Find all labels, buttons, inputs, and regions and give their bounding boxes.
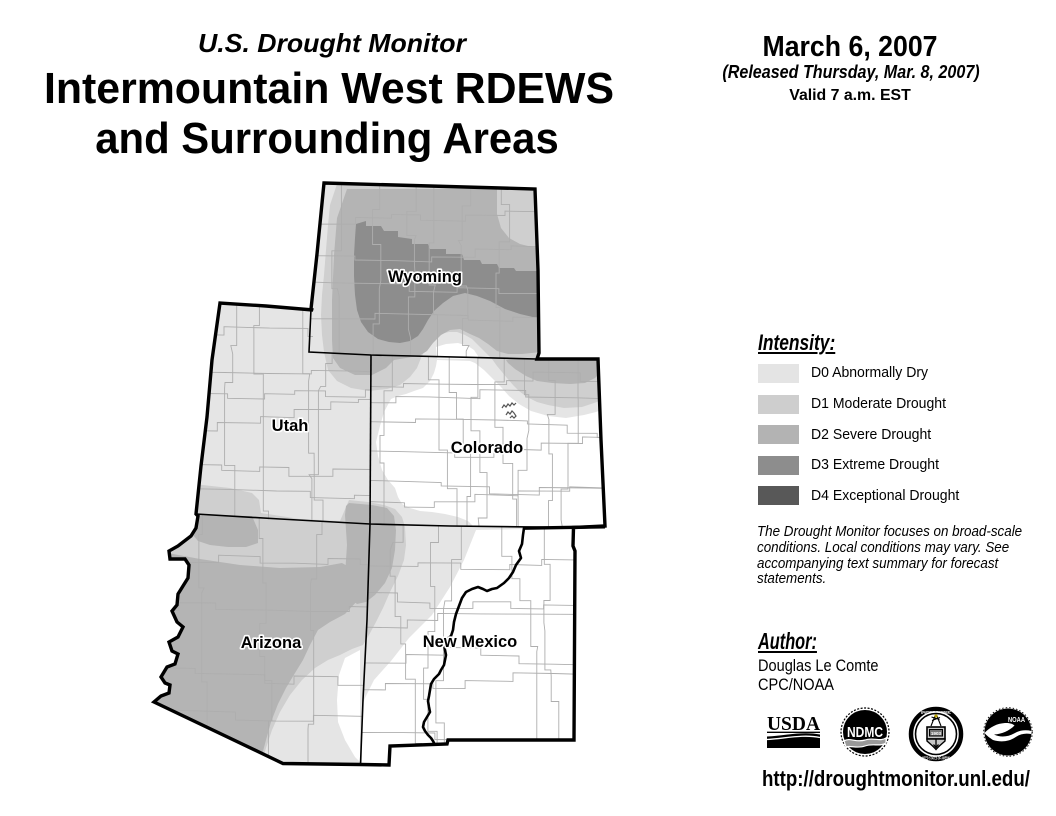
svg-text:Wyoming: Wyoming xyxy=(388,268,462,286)
svg-text:NITED STATES OF AMERIC: NITED STATES OF AMERIC xyxy=(922,755,950,760)
svg-text:Colorado: Colorado xyxy=(451,439,523,457)
svg-text:1903: 1903 xyxy=(931,731,942,736)
svg-text:New Mexico: New Mexico xyxy=(423,633,517,651)
svg-text:NOAA: NOAA xyxy=(1008,717,1025,724)
svg-text:NDMC: NDMC xyxy=(847,724,883,741)
svg-text:Arizona: Arizona xyxy=(241,634,302,652)
svg-text:Utah: Utah xyxy=(272,417,309,435)
